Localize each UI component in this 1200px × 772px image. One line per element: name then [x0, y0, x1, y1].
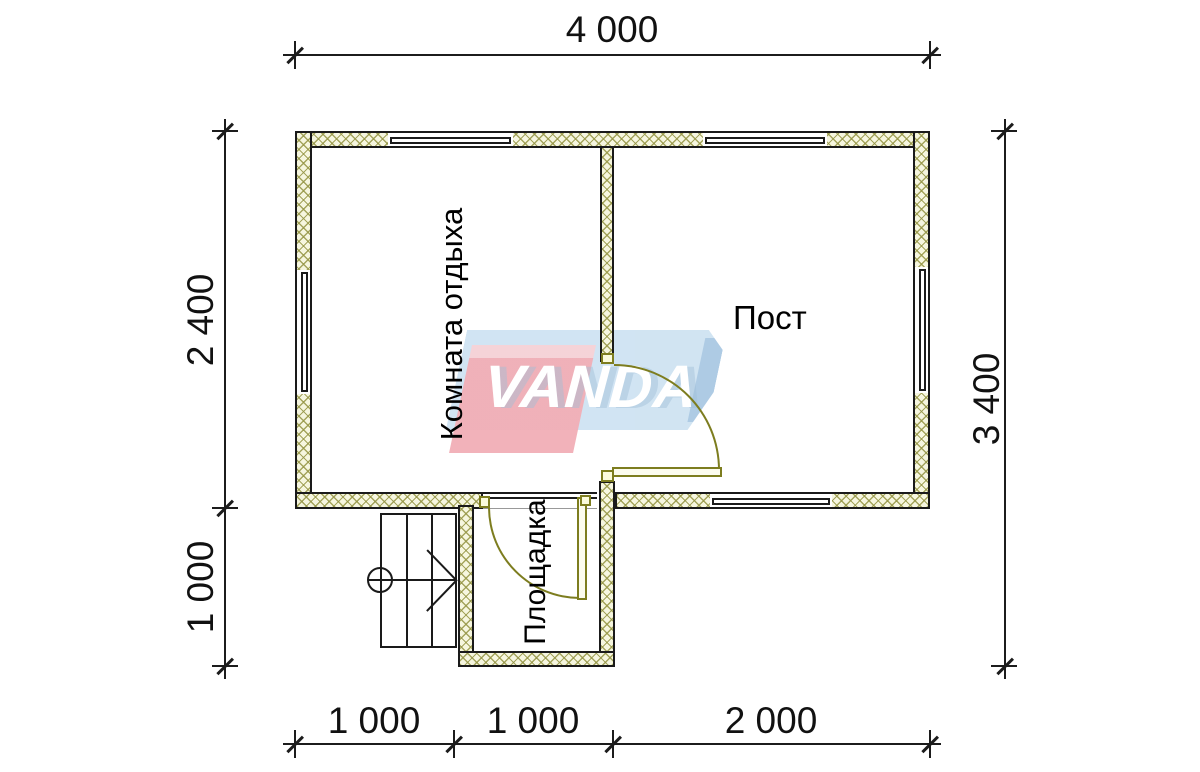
window-glazing: [712, 498, 830, 505]
room-label-rest-room: Комната отдыха: [430, 184, 474, 464]
dim-label-left-1: 2 400: [181, 240, 221, 400]
dim-label-bottom-2: 1 000: [463, 701, 603, 741]
dim-line-top: [283, 54, 941, 56]
window-right: [913, 267, 930, 393]
entry-door-jamb-block: [479, 496, 490, 508]
window-glazing: [390, 137, 511, 144]
window-glazing: [705, 137, 825, 144]
dim-line-left: [224, 119, 226, 679]
dim-label-bottom-3: 2 000: [701, 701, 841, 741]
entry-door-leaf: [577, 497, 587, 600]
room-label-porch: Площадка: [514, 472, 558, 672]
entry-door-hinge-block: [580, 495, 591, 506]
interior-door-leaf: [612, 467, 722, 477]
wall-porch-left: [458, 505, 474, 667]
wall-interior-partition: [600, 146, 614, 362]
wall-porch-right: [599, 481, 615, 667]
dim-label-left-2: 1 000: [181, 507, 221, 667]
window-top-right: [703, 131, 827, 148]
floor-plan-canvas: VANDA: [0, 0, 1200, 772]
dim-label-bottom-1: 1 000: [304, 701, 444, 741]
wall-bottom-left: [295, 492, 483, 509]
window-top-left: [388, 131, 513, 148]
dim-label-right-1: 3 400: [967, 319, 1007, 479]
stairs-direction-line: [368, 579, 457, 581]
room-label-post: Пост: [733, 300, 807, 336]
interior-wall-end-cap: [601, 353, 614, 364]
window-glazing: [919, 269, 926, 391]
window-glazing: [301, 272, 308, 392]
window-bottom-right: [710, 492, 832, 509]
dim-label-top: 4 000: [512, 10, 712, 50]
window-left: [295, 270, 312, 394]
